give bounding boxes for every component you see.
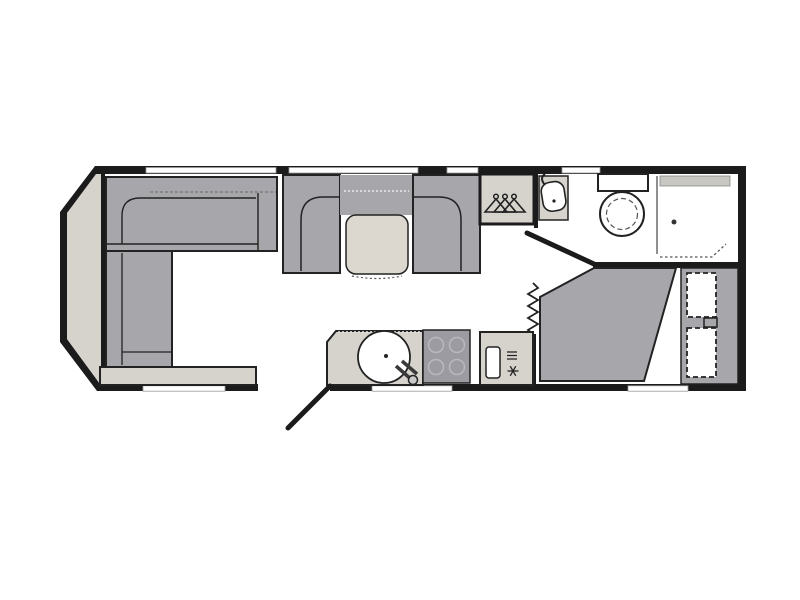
rear-locker-top <box>687 273 716 317</box>
basin-drain <box>552 199 555 202</box>
entry-door-gap <box>258 383 330 393</box>
shower-shelf <box>660 176 730 186</box>
lounge-sofa-top <box>106 177 277 251</box>
kitchen-sink-drain <box>384 354 388 358</box>
entry-door-leaf <box>288 386 330 428</box>
window-dinette-top <box>289 168 418 174</box>
lounge-bench <box>100 367 256 385</box>
caravan-floorplan-svg <box>0 0 800 600</box>
window-bedroom-bottom <box>628 386 688 391</box>
kitchen-tap-knob <box>409 376 418 385</box>
toilet-cistern <box>598 174 648 191</box>
shower-drain <box>672 220 677 225</box>
hob <box>423 330 470 383</box>
window-kitchen-bottom <box>372 386 452 391</box>
window-lounge-bottom <box>143 386 225 391</box>
fridge-door-icon <box>486 347 500 378</box>
dinette-table <box>346 215 408 274</box>
rear-cabinet-latch <box>704 318 717 327</box>
kitchen-sink <box>358 331 410 383</box>
dinette-seat-right <box>413 175 480 273</box>
window-front-lounge-top <box>146 168 276 174</box>
caravan-floorplan-page <box>0 0 800 600</box>
rear-locker-bottom <box>687 328 716 377</box>
wardrobe <box>480 174 534 224</box>
dinette-backrest <box>340 175 413 215</box>
window-galley-top <box>447 168 478 174</box>
window-washroom-top <box>562 168 600 174</box>
lounge-sofa-side <box>106 251 172 367</box>
dinette-seat-left <box>283 175 340 273</box>
